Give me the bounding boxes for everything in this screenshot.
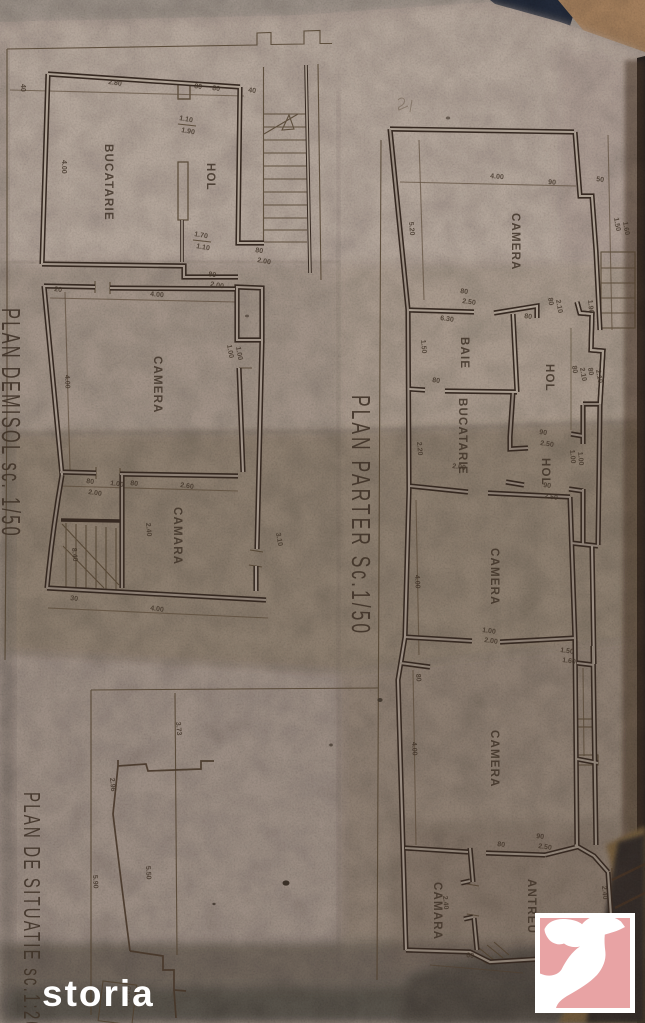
svg-text:storia: storia (42, 973, 155, 1014)
